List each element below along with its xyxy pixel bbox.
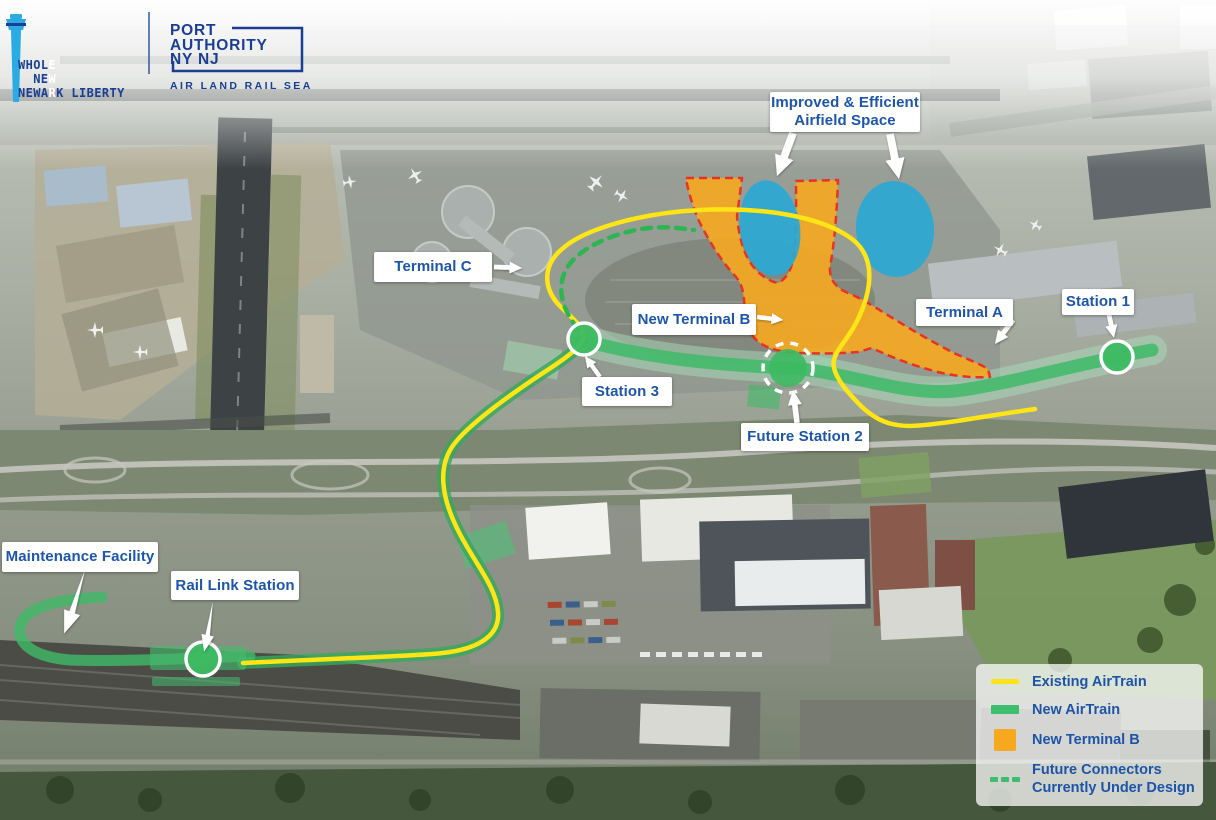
legend-label-line2: Currently Under Design bbox=[1032, 779, 1195, 797]
rail-link-platform-south bbox=[152, 677, 240, 686]
ewr-logo-line1: WHOLE bbox=[18, 58, 56, 72]
rail-link-station-marker bbox=[186, 642, 220, 676]
terminal-c-arrow bbox=[494, 261, 523, 274]
terminal-c-label-text: Terminal C bbox=[394, 258, 471, 276]
future-connectors-swatch bbox=[1012, 777, 1020, 782]
legend-label: New Terminal B bbox=[1032, 731, 1140, 749]
newark-liberty-logo: WHOLE NEW NEWARK LIBERTY bbox=[0, 14, 140, 106]
legend-label: New AirTrain bbox=[1032, 701, 1120, 719]
legend-label-line1: Future Connectors bbox=[1032, 761, 1195, 779]
improved-airfield-arrow-right bbox=[881, 132, 909, 181]
existing-airtrain-route bbox=[243, 209, 1035, 663]
legend-item-new-terminal-b: New Terminal B bbox=[988, 729, 1193, 751]
port-authority-tagline: AIR LAND RAIL SEA bbox=[170, 80, 313, 92]
improved-airfield-label-line2: Airfield Space bbox=[794, 112, 895, 130]
legend-item-future-connectors: Future Connectors Currently Under Design bbox=[988, 761, 1193, 797]
terminal-c-label: Terminal C bbox=[374, 252, 492, 282]
station-1-marker bbox=[1101, 341, 1133, 373]
map-legend: Existing AirTrain New AirTrain New Termi… bbox=[976, 664, 1203, 806]
rail-link-station-label: Rail Link Station bbox=[171, 571, 299, 600]
future-station-2-label: Future Station 2 bbox=[741, 423, 869, 451]
airfield-space-ellipse-right bbox=[852, 178, 938, 280]
legend-label: Future Connectors Currently Under Design bbox=[1032, 761, 1195, 797]
terminal-a-label: Terminal A bbox=[916, 299, 1013, 326]
existing-airtrain-swatch bbox=[991, 679, 1019, 684]
station-1-label: Station 1 bbox=[1062, 289, 1134, 315]
future-station-2-label-text: Future Station 2 bbox=[747, 428, 863, 446]
future-connectors-swatch bbox=[990, 777, 998, 782]
new-terminal-b-label-text: New Terminal B bbox=[638, 311, 751, 329]
station-3-label: Station 3 bbox=[582, 377, 672, 406]
pa-line3: NY NJ bbox=[170, 53, 268, 68]
new-airtrain-swatch bbox=[991, 705, 1019, 714]
station-3-label-text: Station 3 bbox=[595, 383, 659, 401]
improved-airfield-label-line1: Improved & Efficient bbox=[771, 94, 919, 112]
maintenance-facility-label: Maintenance Facility bbox=[2, 542, 158, 572]
legend-item-new-airtrain: New AirTrain bbox=[988, 701, 1193, 719]
station-1-label-text: Station 1 bbox=[1066, 293, 1130, 311]
ewr-logo-line2: NEW bbox=[33, 72, 56, 86]
new-terminal-b-label: New Terminal B bbox=[632, 304, 756, 335]
new-terminal-b-swatch bbox=[994, 729, 1016, 751]
airport-map-infographic: Improved & Efficient Airfield Space Term… bbox=[0, 0, 1216, 820]
terminal-a-label-text: Terminal A bbox=[926, 304, 1003, 322]
port-authority-wordmark: PORT AUTHORITY NY NJ bbox=[170, 24, 268, 68]
new-airtrain-route-southwest bbox=[243, 341, 582, 663]
improved-airfield-arrow-left bbox=[768, 130, 802, 180]
rail-link-station-label-text: Rail Link Station bbox=[175, 577, 294, 595]
legend-label: Existing AirTrain bbox=[1032, 673, 1147, 691]
station-3-marker bbox=[568, 323, 600, 355]
legend-item-existing-airtrain: Existing AirTrain bbox=[988, 673, 1193, 691]
future-connectors-swatch bbox=[1001, 777, 1009, 782]
future-station-2-arrow bbox=[786, 389, 804, 423]
improved-airfield-label: Improved & Efficient Airfield Space bbox=[770, 92, 920, 132]
future-station-2-marker bbox=[769, 349, 807, 387]
ewr-logo-line3: NEWARK LIBERTY bbox=[18, 86, 125, 100]
port-authority-logo: PORT AUTHORITY NY NJ AIR LAND RAIL SEA bbox=[168, 22, 313, 98]
logo-divider bbox=[148, 12, 150, 74]
maintenance-facility-label-text: Maintenance Facility bbox=[6, 548, 155, 566]
